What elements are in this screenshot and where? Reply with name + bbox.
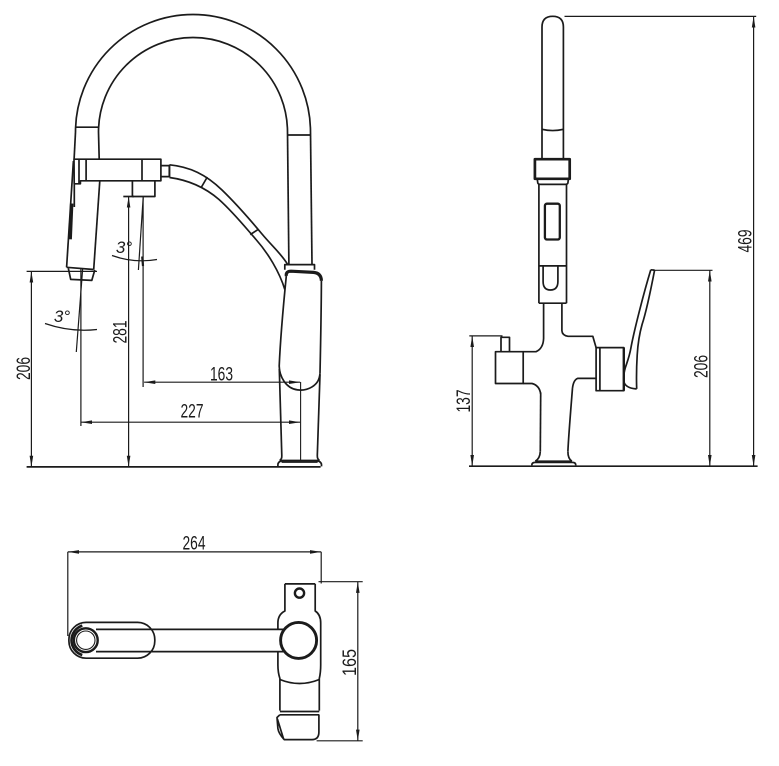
svg-text:3°: 3° [54, 307, 70, 326]
svg-text:165: 165 [340, 649, 361, 676]
svg-text:206: 206 [14, 357, 35, 380]
svg-text:264: 264 [183, 534, 206, 555]
svg-text:3°: 3° [116, 238, 132, 257]
svg-text:281: 281 [111, 321, 132, 344]
svg-text:163: 163 [210, 364, 233, 385]
svg-text:469: 469 [736, 230, 757, 253]
svg-text:206: 206 [692, 355, 713, 378]
svg-text:227: 227 [181, 402, 204, 423]
svg-text:137: 137 [454, 390, 475, 413]
